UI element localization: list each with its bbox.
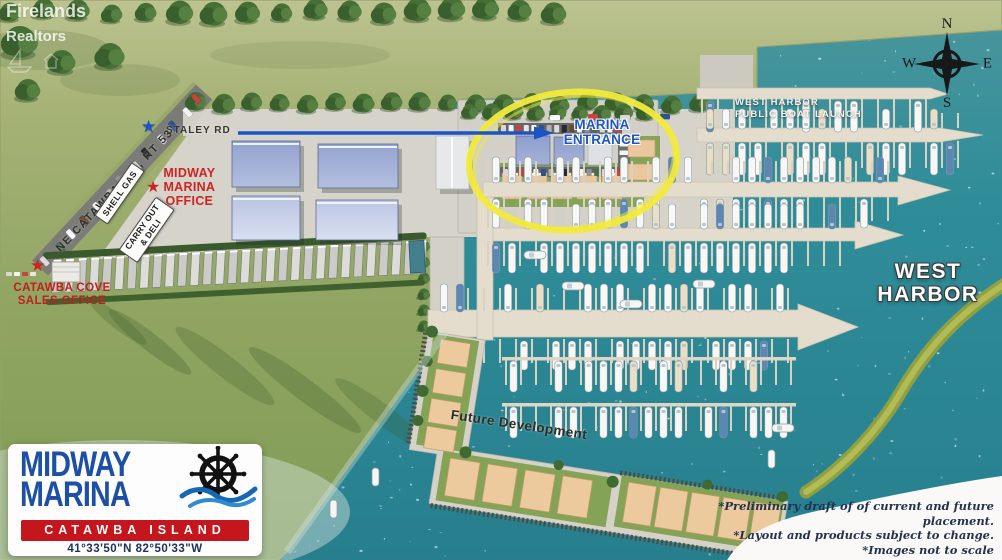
dock-finger bbox=[520, 359, 522, 385]
boat-windshield bbox=[740, 123, 744, 126]
wave-speckle bbox=[873, 458, 875, 460]
boat-windshield bbox=[798, 177, 802, 180]
wave-speckle bbox=[822, 463, 823, 465]
dock-finger bbox=[655, 405, 657, 431]
compass-east: E bbox=[983, 56, 992, 73]
tree-icon bbox=[251, 97, 262, 108]
car-icon bbox=[14, 272, 20, 276]
wave-speckle bbox=[342, 487, 345, 489]
disclaimer-line3: *Images not to scale bbox=[688, 543, 994, 558]
wave-speckle bbox=[965, 247, 967, 248]
dock-finger bbox=[807, 161, 809, 182]
boat-launch-line1: WEST HARBOR bbox=[735, 97, 862, 109]
wave-speckle bbox=[905, 256, 907, 258]
boat-windshield bbox=[702, 246, 706, 249]
wave-speckle bbox=[889, 452, 892, 454]
boat-windshield bbox=[570, 344, 574, 347]
dock-finger bbox=[659, 288, 661, 311]
boat-windshield bbox=[846, 177, 850, 180]
wave-speckle bbox=[508, 445, 510, 447]
dock-finger bbox=[451, 288, 453, 311]
tree-icon bbox=[363, 98, 375, 110]
dock-finger bbox=[807, 241, 809, 266]
wave-speckle bbox=[837, 308, 840, 310]
dock-finger bbox=[531, 288, 533, 311]
boat-windshield bbox=[782, 410, 786, 413]
boat-icon bbox=[524, 251, 546, 259]
wave-speckle bbox=[653, 278, 656, 280]
disclaimer-text: *Preliminary draft of of current and fut… bbox=[688, 499, 994, 557]
star-icon: ★ bbox=[30, 256, 45, 276]
dock-finger bbox=[717, 113, 719, 128]
boat-windshield bbox=[622, 246, 626, 249]
dock-finger bbox=[759, 241, 761, 266]
dock-finger bbox=[823, 161, 825, 182]
boat-windshield bbox=[587, 364, 591, 367]
wave-speckle bbox=[968, 187, 970, 189]
wave-speckle bbox=[444, 555, 446, 556]
boat-windshield bbox=[722, 364, 726, 367]
wave-speckle bbox=[697, 396, 699, 397]
dock-finger bbox=[631, 161, 633, 182]
dock-finger bbox=[759, 161, 761, 182]
dock-finger bbox=[695, 208, 697, 228]
wave-speckle bbox=[855, 490, 858, 492]
dock-finger bbox=[925, 141, 927, 168]
dock-finger bbox=[580, 359, 582, 385]
dock-finger bbox=[790, 359, 792, 385]
boat-windshield bbox=[762, 344, 766, 347]
dock-finger bbox=[745, 359, 747, 385]
dock-finger bbox=[941, 141, 943, 168]
wave-speckle bbox=[794, 430, 795, 431]
wave-speckle bbox=[979, 202, 981, 204]
boat-launch-line2: PUBLIC BOAT LAUNCH bbox=[735, 109, 862, 121]
boat-windshield bbox=[830, 177, 834, 180]
boat-windshield bbox=[730, 344, 734, 347]
dock-finger bbox=[611, 288, 613, 311]
boat-windshield bbox=[750, 177, 754, 180]
tree-icon bbox=[419, 97, 431, 109]
wave-speckle bbox=[835, 379, 838, 380]
wave-speckle bbox=[875, 365, 877, 367]
wave-speckle bbox=[890, 440, 893, 442]
boat-windshield bbox=[602, 364, 606, 367]
dock-finger bbox=[775, 359, 777, 385]
dock-finger bbox=[957, 113, 959, 128]
wave-speckle bbox=[627, 363, 630, 364]
wave-speckle bbox=[389, 480, 391, 481]
boat-windshield bbox=[494, 202, 498, 205]
boat-windshield bbox=[782, 223, 786, 226]
wave-speckle bbox=[842, 393, 843, 394]
tree-icon bbox=[417, 3, 432, 18]
wave-speckle bbox=[631, 343, 632, 344]
dock-finger bbox=[727, 241, 729, 266]
dock-finger bbox=[640, 405, 642, 431]
boat-windshield bbox=[510, 177, 514, 180]
dock-finger bbox=[717, 141, 719, 168]
boat-windshield bbox=[788, 123, 792, 126]
boat-windshield bbox=[666, 344, 670, 347]
dock-finger bbox=[647, 161, 649, 182]
wave-speckle bbox=[501, 410, 504, 411]
dock-rail bbox=[502, 403, 796, 407]
dock-finger bbox=[839, 161, 841, 182]
boat-windshield bbox=[734, 177, 738, 180]
wave-speckle bbox=[760, 454, 763, 455]
wave-speckle bbox=[904, 408, 906, 409]
wave-speckle bbox=[500, 365, 502, 367]
boat-windshield bbox=[932, 146, 936, 149]
dock-finger bbox=[647, 208, 649, 228]
car-icon bbox=[594, 169, 599, 176]
disclaimer-line1: *Preliminary draft of of current and fut… bbox=[688, 499, 994, 528]
boat-launch-label: WEST HARBOR PUBLIC BOAT LAUNCH bbox=[735, 97, 862, 120]
boat-windshield bbox=[698, 306, 702, 309]
boat-windshield bbox=[650, 306, 654, 309]
tree-icon bbox=[27, 84, 41, 98]
wave-speckle bbox=[384, 538, 385, 540]
dock-finger bbox=[701, 141, 703, 168]
dock-finger bbox=[655, 359, 657, 385]
boat-windshield bbox=[804, 123, 808, 126]
boat-icon bbox=[372, 468, 379, 486]
boat-windshield bbox=[554, 344, 558, 347]
wave-speckle bbox=[439, 532, 441, 533]
dock-finger bbox=[519, 241, 521, 266]
tree-icon bbox=[223, 99, 235, 111]
west-harbor-line1: WEST bbox=[860, 260, 996, 283]
marina-office-line2: MARINA bbox=[163, 180, 215, 194]
star-icon: ★ bbox=[146, 177, 160, 197]
dock-finger bbox=[615, 161, 617, 182]
wave-speckle bbox=[795, 85, 797, 86]
dock-finger bbox=[711, 208, 713, 228]
dock-finger bbox=[519, 161, 521, 182]
boat-windshield bbox=[606, 177, 610, 180]
boat-windshield bbox=[782, 246, 786, 249]
boat-windshield bbox=[730, 306, 734, 309]
dock-finger bbox=[791, 241, 793, 266]
tree-icon bbox=[145, 7, 157, 19]
dock-finger bbox=[551, 241, 553, 266]
boat-windshield bbox=[606, 202, 610, 205]
wave-speckle bbox=[646, 391, 647, 393]
dock-finger bbox=[640, 359, 642, 385]
wave-speckle bbox=[416, 499, 419, 501]
boat-windshield bbox=[442, 306, 446, 309]
dock-finger bbox=[775, 241, 777, 266]
sailboat-icon bbox=[6, 48, 76, 76]
dock-finger bbox=[723, 288, 725, 311]
boat-windshield bbox=[750, 246, 754, 249]
boat-windshield bbox=[766, 177, 770, 180]
boat-windshield bbox=[708, 104, 712, 107]
wave-speckle bbox=[380, 508, 382, 509]
wave-speckle bbox=[818, 58, 821, 60]
dock-finger bbox=[583, 241, 585, 266]
realtor-watermark: Firelands Realtors bbox=[6, 2, 86, 80]
wave-speckle bbox=[409, 541, 411, 542]
wave-speckle bbox=[484, 550, 486, 551]
boat-windshield bbox=[606, 246, 610, 249]
tree-icon bbox=[349, 5, 362, 18]
dock-finger bbox=[727, 208, 729, 228]
dock-finger bbox=[775, 208, 777, 228]
boat-windshield bbox=[804, 146, 808, 149]
wave-speckle bbox=[854, 207, 855, 208]
dock-finger bbox=[535, 161, 537, 182]
dock-finger bbox=[839, 241, 841, 266]
dock-finger bbox=[625, 405, 627, 431]
car-icon bbox=[587, 169, 592, 176]
boat-icon bbox=[330, 500, 337, 518]
dock-finger bbox=[925, 113, 927, 128]
wave-speckle bbox=[757, 362, 760, 364]
marina-entrance-label: MARINA ENTRANCE bbox=[544, 117, 660, 147]
wave-speckle bbox=[780, 55, 781, 57]
wave-speckle bbox=[698, 345, 701, 346]
dock-finger bbox=[739, 288, 741, 311]
wave-speckle bbox=[827, 350, 829, 351]
dock-finger bbox=[791, 208, 793, 228]
logo-coordinates: 41°33'50"N 82°50'33"W bbox=[21, 543, 249, 555]
car-icon bbox=[22, 272, 28, 276]
boat-windshield bbox=[766, 223, 770, 226]
boat-icon bbox=[620, 300, 642, 308]
boat-windshield bbox=[682, 344, 686, 347]
wave-speckle bbox=[553, 295, 555, 296]
logo-banner: CATAWBA ISLAND bbox=[21, 520, 249, 541]
wave-speckle bbox=[593, 277, 594, 278]
watermark-type: Realtors bbox=[6, 29, 86, 44]
pier bbox=[477, 197, 493, 340]
wave-speckle bbox=[428, 529, 431, 530]
dock-finger bbox=[487, 161, 489, 182]
dock-finger bbox=[547, 288, 549, 311]
boat-windshield bbox=[512, 410, 516, 413]
tree-icon bbox=[451, 2, 466, 17]
boat-windshield bbox=[458, 306, 462, 309]
wave-speckle bbox=[408, 392, 409, 393]
boat-windshield bbox=[746, 344, 750, 347]
dock-finger bbox=[505, 359, 507, 385]
boat-windshield bbox=[494, 177, 498, 180]
wave-speckle bbox=[359, 550, 362, 552]
wave-speckle bbox=[861, 337, 862, 338]
wave-speckle bbox=[563, 409, 565, 410]
wave-speckle bbox=[992, 173, 995, 175]
dock-finger bbox=[787, 288, 789, 311]
boat-windshield bbox=[510, 246, 514, 249]
boat-windshield bbox=[522, 344, 526, 347]
dock-finger bbox=[685, 405, 687, 431]
wave-speckle bbox=[615, 401, 618, 402]
boat-windshield bbox=[740, 146, 744, 149]
wave-speckle bbox=[435, 546, 438, 548]
boat-windshield bbox=[677, 410, 681, 413]
boat-windshield bbox=[654, 223, 658, 226]
dock-finger bbox=[760, 359, 762, 385]
wave-speckle bbox=[952, 410, 954, 411]
boat-windshield bbox=[718, 223, 722, 226]
watermark-name: Firelands bbox=[6, 2, 86, 20]
dock-finger bbox=[615, 241, 617, 266]
boat-windshield bbox=[767, 410, 771, 413]
dock-finger bbox=[893, 141, 895, 168]
boat-windshield bbox=[557, 410, 561, 413]
boat-windshield bbox=[884, 146, 888, 149]
dock-finger bbox=[715, 405, 717, 431]
dock-finger bbox=[663, 208, 665, 228]
dock-finger bbox=[679, 208, 681, 228]
marina-entrance-line1: MARINA bbox=[544, 117, 660, 132]
boat-windshield bbox=[586, 344, 590, 347]
dock-finger bbox=[775, 161, 777, 182]
wave-speckle bbox=[379, 505, 382, 507]
wave-speckle bbox=[895, 50, 896, 52]
boat-windshield bbox=[590, 246, 594, 249]
dock-finger bbox=[941, 113, 943, 128]
dock-finger bbox=[715, 359, 717, 385]
boat-icon bbox=[562, 282, 584, 290]
boat-cabin bbox=[625, 302, 630, 307]
dock-finger bbox=[759, 208, 761, 228]
boat-windshield bbox=[708, 123, 712, 126]
wave-speckle bbox=[976, 398, 977, 399]
dock-finger bbox=[610, 359, 612, 385]
boat-windshield bbox=[586, 306, 590, 309]
boat-windshield bbox=[670, 223, 674, 226]
boat-windshield bbox=[682, 306, 686, 309]
wave-speckle bbox=[892, 71, 895, 72]
wave-speckle bbox=[857, 365, 858, 366]
tree-icon bbox=[519, 5, 532, 18]
boat-ramp bbox=[700, 55, 753, 93]
boat-icon bbox=[768, 450, 775, 468]
boat-windshield bbox=[677, 364, 681, 367]
dock-finger bbox=[711, 161, 713, 182]
dock-finger bbox=[599, 161, 601, 182]
dock-finger bbox=[503, 161, 505, 182]
boat-windshield bbox=[526, 177, 530, 180]
compass-south: S bbox=[943, 95, 951, 112]
boat-windshield bbox=[782, 177, 786, 180]
wave-speckle bbox=[472, 446, 475, 448]
wave-speckle bbox=[941, 477, 943, 479]
wave-speckle bbox=[955, 445, 957, 447]
boat-windshield bbox=[558, 246, 562, 249]
tree-icon bbox=[247, 7, 260, 20]
wave-speckle bbox=[373, 461, 376, 463]
dock-finger bbox=[855, 161, 857, 182]
wave-speckle bbox=[723, 471, 725, 473]
wave-speckle bbox=[922, 317, 923, 319]
dock-finger bbox=[730, 359, 732, 385]
dock-finger bbox=[487, 241, 489, 266]
midway-marina-logo: MIDWAY MARINA CATAWBA ISLAND 41°33'50"N … bbox=[8, 444, 262, 556]
dock-finger bbox=[503, 241, 505, 266]
dock-finger bbox=[823, 208, 825, 228]
dock-finger bbox=[550, 359, 552, 385]
boat-windshield bbox=[798, 223, 802, 226]
dock-finger bbox=[839, 208, 841, 228]
compass-west: W bbox=[902, 56, 916, 73]
boat-windshield bbox=[752, 410, 756, 413]
ship-wheel-icon bbox=[178, 446, 258, 518]
dock-finger bbox=[743, 241, 745, 266]
dock-finger bbox=[515, 288, 517, 311]
boat-windshield bbox=[788, 146, 792, 149]
dock-finger bbox=[647, 241, 649, 266]
boat-windshield bbox=[820, 123, 824, 126]
tree-icon bbox=[108, 49, 124, 65]
dock-finger bbox=[909, 141, 911, 168]
sales-office-building bbox=[52, 262, 80, 282]
wave-speckle bbox=[888, 373, 891, 375]
dock-finger bbox=[771, 288, 773, 311]
boat-windshield bbox=[708, 146, 712, 149]
wave-speckle bbox=[839, 454, 842, 456]
boat-windshield bbox=[750, 223, 754, 226]
compass-north: N bbox=[942, 16, 953, 33]
wave-speckle bbox=[979, 455, 981, 457]
boat-windshield bbox=[617, 364, 621, 367]
tree-icon bbox=[671, 100, 682, 111]
boat-windshield bbox=[638, 246, 642, 249]
wave-speckle bbox=[410, 484, 412, 486]
compass-rose: N E S W bbox=[902, 18, 992, 110]
dock-finger bbox=[631, 241, 633, 266]
logo-name-line2: MARINA bbox=[20, 480, 130, 510]
wave-speckle bbox=[705, 399, 707, 401]
boat-cabin bbox=[777, 426, 782, 431]
boat-windshield bbox=[572, 410, 576, 413]
boat-windshield bbox=[707, 410, 711, 413]
boat-windshield bbox=[650, 344, 654, 347]
sales-office-line1: CATAWBA COVE bbox=[0, 282, 124, 295]
boat-windshield bbox=[494, 246, 498, 249]
boat-windshield bbox=[862, 202, 866, 205]
tree-icon bbox=[315, 4, 328, 17]
dock-finger bbox=[487, 208, 489, 228]
boat-windshield bbox=[557, 364, 561, 367]
wave-speckle bbox=[928, 365, 931, 367]
boat-windshield bbox=[654, 177, 658, 180]
wave-speckle bbox=[758, 447, 760, 449]
dock-finger bbox=[887, 161, 889, 182]
wave-speckle bbox=[971, 247, 973, 248]
dock-finger bbox=[755, 288, 757, 311]
dock-finger bbox=[887, 197, 889, 221]
boat-windshield bbox=[622, 177, 626, 180]
wave-speckle bbox=[667, 418, 670, 420]
boat-windshield bbox=[622, 202, 626, 205]
wave-speckle bbox=[399, 489, 400, 491]
boat-windshield bbox=[766, 246, 770, 249]
dock-finger bbox=[595, 359, 597, 385]
boat-windshield bbox=[602, 410, 606, 413]
boat-windshield bbox=[830, 223, 834, 226]
wave-speckle bbox=[945, 382, 946, 384]
dock-finger bbox=[745, 405, 747, 431]
boat-icon bbox=[772, 424, 794, 432]
wave-speckle bbox=[661, 472, 663, 473]
dock-finger bbox=[567, 161, 569, 182]
dock-finger bbox=[743, 161, 745, 182]
disclaimer-line2: *Layout and products subject to change. bbox=[688, 528, 994, 543]
